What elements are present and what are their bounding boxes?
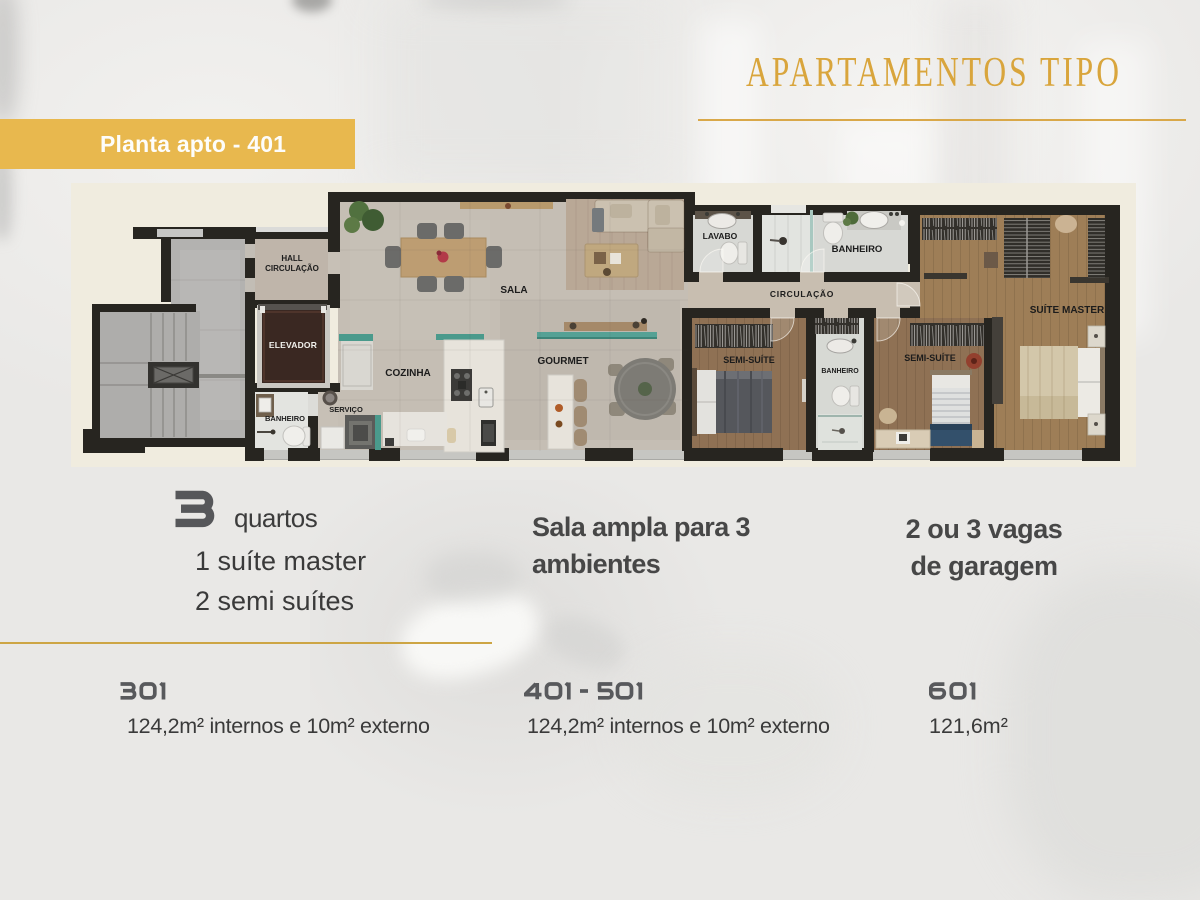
- svg-text:CIRCULAÇÃO: CIRCULAÇÃO: [265, 264, 319, 273]
- svg-text:SEMI-SUÍTE: SEMI-SUÍTE: [904, 353, 956, 363]
- svg-text:LAVABO: LAVABO: [703, 231, 738, 241]
- svg-text:BANHEIRO: BANHEIRO: [821, 368, 859, 375]
- svg-text:ELEVADOR: ELEVADOR: [269, 340, 317, 350]
- svg-text:BANHEIRO: BANHEIRO: [832, 244, 883, 255]
- svg-text:HALL: HALL: [281, 254, 302, 263]
- svg-text:SALA: SALA: [500, 285, 527, 296]
- svg-text:SEMI-SUÍTE: SEMI-SUÍTE: [723, 355, 775, 365]
- svg-text:GOURMET: GOURMET: [537, 356, 588, 367]
- svg-text:CIRCULAÇÃO: CIRCULAÇÃO: [770, 289, 834, 299]
- svg-text:COZINHA: COZINHA: [385, 368, 431, 379]
- svg-text:SERVIÇO: SERVIÇO: [329, 405, 363, 414]
- svg-text:BANHEIRO: BANHEIRO: [265, 414, 305, 423]
- svg-text:SUÍTE MASTER: SUÍTE MASTER: [1030, 303, 1105, 316]
